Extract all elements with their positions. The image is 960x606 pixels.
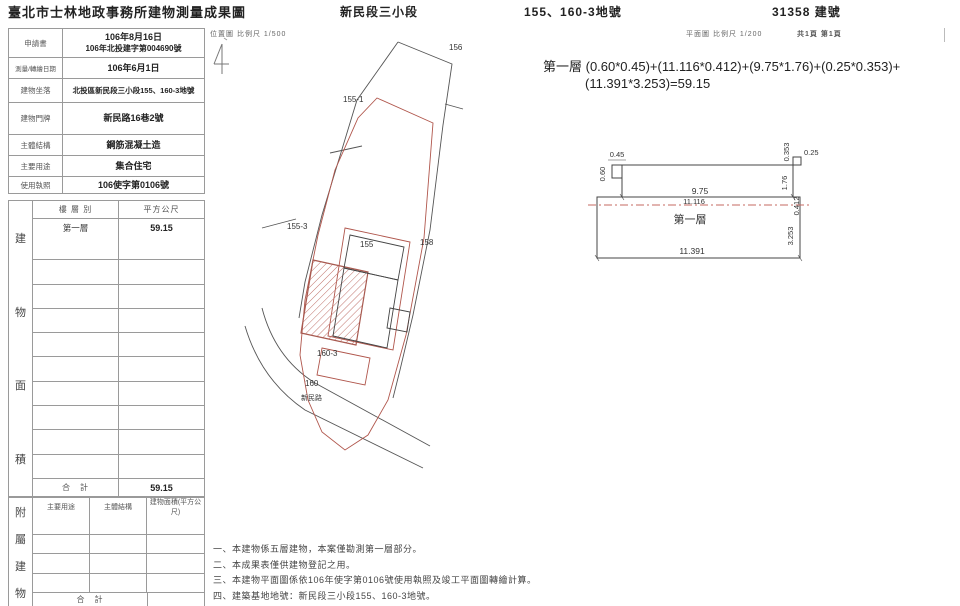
- license-value: 106使字第0106號: [63, 177, 204, 193]
- building-number-label: 31358 建號: [772, 3, 841, 20]
- dim-0-60: 0.60: [598, 167, 607, 182]
- parcel-label-160: 160: [305, 379, 319, 388]
- note-line-4: 四、建築基地地號：新民段三小段155、160-3地號。: [213, 589, 633, 605]
- table-row: [33, 332, 204, 356]
- table-row: [33, 405, 204, 429]
- annex-structure-header: 主體結構: [90, 498, 147, 515]
- parcel-label-155-3: 155-3: [287, 222, 308, 231]
- annex-empty-rows: [33, 515, 204, 592]
- parcel-boundary-lines: [245, 42, 463, 468]
- table-row: [33, 381, 204, 405]
- table-row: [33, 534, 204, 554]
- first-floor-plan: 0.45 0.60 0.353 0.25 9.75 11.116 1.76 0.…: [580, 140, 830, 270]
- floor-plan-scale-label: 平面圖 比例尺 1/200: [686, 29, 762, 39]
- formula-line-2: (11.391*3.253)=59.15: [543, 75, 953, 92]
- dim-11-116: 11.116: [683, 197, 705, 206]
- floor-plan-room-label: 第一層: [674, 212, 707, 226]
- parcel-label-156: 156: [449, 43, 463, 52]
- parcel-label-155: 155: [360, 240, 374, 249]
- annex-header-row: 主要用途 主體結構 建物面積(平方公尺): [33, 498, 204, 515]
- info-label: 使用執照: [9, 177, 63, 193]
- side-char: 屬: [15, 531, 26, 547]
- dim-0-412: 0.412: [792, 197, 801, 216]
- table-row: [33, 454, 204, 478]
- area-cell: 59.15: [119, 219, 204, 236]
- side-char: 建: [15, 558, 26, 574]
- dim-0-45: 0.45: [610, 150, 625, 159]
- info-row-survey-date: 測量/轉繪日期 106年6月1日: [9, 57, 204, 78]
- annex-use-header: 主要用途: [33, 498, 90, 515]
- info-label: 申請書: [9, 29, 63, 57]
- parcel-label-155-1: 155-1: [343, 95, 364, 104]
- info-row-license: 使用執照 106使字第0106號: [9, 176, 204, 193]
- road-name-label: 新民路: [301, 393, 322, 402]
- site-location-map: 156 155-1 155-3 155 158 160-3 160 新民路: [205, 38, 540, 508]
- info-label: 主要用途: [9, 156, 63, 176]
- dim-11-391: 11.391: [679, 246, 705, 256]
- parcel-numbers-label: 155、160-3地號: [524, 3, 622, 20]
- annex-area-header: 建物面積(平方公尺): [147, 498, 204, 515]
- building-location-value: 北投區新民段三小段155、160-3地號: [63, 79, 204, 102]
- parcel-label-158: 158: [420, 238, 434, 247]
- info-label: 建物坐落: [9, 79, 63, 102]
- dim-9-75: 9.75: [692, 186, 709, 196]
- annex-total-value: [148, 593, 204, 606]
- table-row: [33, 429, 204, 453]
- side-char: 面: [15, 377, 26, 393]
- annex-building-table: 附 屬 建 物 主要用途 主體結構 建物面積(平方公尺) 合 計: [8, 497, 205, 606]
- annex-total-row: 合 計: [33, 592, 204, 606]
- survey-document-page: 臺北市士林地政事務所建物測量成果圖 新民段三小段 155、160-3地號 313…: [0, 0, 960, 606]
- building-area-table: 建 物 面 積 樓 層 別 平方公尺 第一層 59.15: [8, 200, 205, 497]
- table-row: [33, 308, 204, 332]
- dim-0-25: 0.25: [804, 148, 819, 157]
- dim-3-253: 3.253: [786, 227, 795, 246]
- subject-building-hatched-area: [301, 260, 368, 345]
- structure-value: 鋼筋混凝土造: [63, 135, 204, 155]
- floor-column-header: 樓 層 別: [33, 201, 119, 218]
- formula-line-1: 第一層 (0.60*0.45)+(11.116*0.412)+(9.75*1.7…: [543, 58, 953, 75]
- note-line-2: 二、本成果表僅供建物登記之用。: [213, 558, 633, 574]
- table-row: [33, 553, 204, 573]
- side-char: 物: [15, 585, 26, 601]
- info-label: 主體結構: [9, 135, 63, 155]
- application-number: 106年北投建字第004690號: [85, 43, 181, 54]
- info-label: 建物門牌: [9, 103, 63, 134]
- side-char: 附: [15, 504, 26, 520]
- area-total-row: 合 計 59.15: [33, 478, 204, 496]
- table-row: [33, 515, 204, 534]
- document-title: 臺北市士林地政事務所建物測量成果圖: [8, 2, 246, 21]
- table-row: [33, 573, 204, 593]
- total-label: 合 計: [33, 479, 119, 496]
- survey-date-value: 106年6月1日: [63, 58, 204, 78]
- note-line-3: 三、本建物平面圖係依106年使字第0106號使用執照及竣工平面圖轉繪計算。: [213, 573, 633, 589]
- table-row: [33, 259, 204, 283]
- area-table-side-label: 建 物 面 積: [9, 201, 33, 496]
- info-label: 測量/轉繪日期: [9, 58, 63, 78]
- table-row: [33, 236, 204, 259]
- dim-1-76: 1.76: [780, 176, 789, 191]
- sqm-column-header: 平方公尺: [119, 201, 204, 218]
- survey-notes: 一、本建物係五層建物，本案僅勘測第一層部分。 二、本成果表僅供建物登記之用。 三…: [213, 542, 633, 604]
- sheet-edge-mark: [944, 28, 945, 42]
- door-plate-value: 新民路16巷2號: [63, 103, 204, 134]
- info-row-structure: 主體結構 鋼筋混凝土造: [9, 134, 204, 155]
- info-row-usage: 主要用途 集合住宅: [9, 155, 204, 176]
- floor-cell: 第一層: [33, 219, 119, 236]
- page-count-label: 共1頁 第1頁: [797, 29, 842, 39]
- annex-table-side-label: 附 屬 建 物: [9, 498, 33, 606]
- total-value: 59.15: [119, 479, 204, 496]
- dim-0-353: 0.353: [782, 143, 791, 162]
- table-row: [33, 284, 204, 308]
- area-empty-rows: [33, 236, 204, 478]
- building-info-table: 申請書 106年8月16日 106年北投建字第004690號 測量/轉繪日期 1…: [8, 28, 205, 194]
- table-row: [33, 356, 204, 380]
- area-data-row: 第一層 59.15: [33, 218, 204, 236]
- area-header-row: 樓 層 別 平方公尺: [33, 201, 204, 218]
- note-line-1: 一、本建物係五層建物，本案僅勘測第一層部分。: [213, 542, 633, 558]
- application-date: 106年8月16日: [105, 32, 162, 43]
- side-char: 積: [15, 451, 26, 467]
- area-calculation-formula: 第一層 (0.60*0.45)+(11.116*0.412)+(9.75*1.7…: [543, 58, 953, 92]
- info-row-application: 申請書 106年8月16日 106年北投建字第004690號: [9, 29, 204, 57]
- info-row-doorplate: 建物門牌 新民路16巷2號: [9, 102, 204, 134]
- land-section-label: 新民段三小段: [340, 3, 418, 20]
- usage-value: 集合住宅: [63, 156, 204, 176]
- side-char: 物: [15, 304, 26, 320]
- side-char: 建: [15, 230, 26, 246]
- info-value: 106年8月16日 106年北投建字第004690號: [63, 29, 204, 57]
- annex-total-label: 合 計: [33, 593, 148, 606]
- info-row-location: 建物坐落 北投區新民段三小段155、160-3地號: [9, 78, 204, 102]
- parcel-label-160-3: 160-3: [317, 349, 338, 358]
